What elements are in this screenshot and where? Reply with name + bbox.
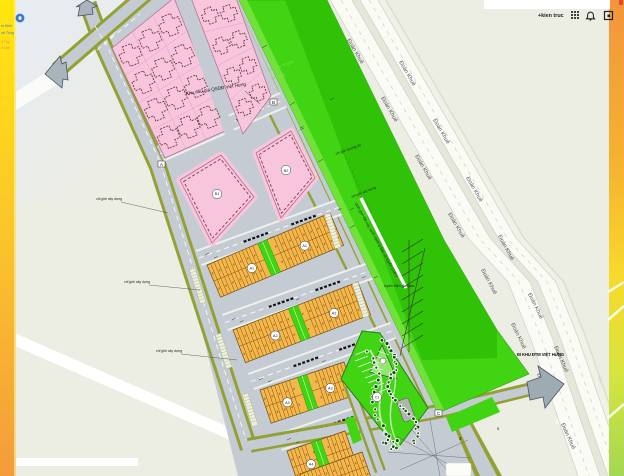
svg-text:B: B bbox=[272, 100, 275, 105]
svg-text:ư Mai: ư Mai bbox=[1, 46, 10, 50]
svg-text:A2: A2 bbox=[273, 334, 278, 338]
svg-text:chỉ giới xây dựng: chỉ giới xây dựng bbox=[96, 197, 122, 201]
svg-text:A3: A3 bbox=[285, 401, 290, 405]
svg-text:A4: A4 bbox=[309, 463, 314, 467]
svg-text:C1: C1 bbox=[375, 396, 380, 400]
svg-text:A1: A1 bbox=[249, 267, 254, 271]
svg-text:chỉ giới xây dựng: chỉ giới xây dựng bbox=[124, 280, 150, 284]
svg-text:nh Tùng: nh Tùng bbox=[1, 31, 14, 35]
svg-text:g Tạp: g Tạp bbox=[1, 40, 10, 44]
svg-text:+kien truc: +kien truc bbox=[538, 13, 564, 19]
svg-text:A1: A1 bbox=[302, 244, 307, 248]
svg-text:A: A bbox=[160, 162, 163, 167]
svg-text:ĐI KHU ĐTM VIỆT HƯNG: ĐI KHU ĐTM VIỆT HƯNG bbox=[517, 352, 564, 357]
svg-text:A2: A2 bbox=[332, 312, 337, 316]
svg-text:tuyến điện đi ngầm: tuyến điện đi ngầm bbox=[384, 284, 414, 288]
svg-text:A3: A3 bbox=[328, 387, 333, 391]
svg-text:B2: B2 bbox=[284, 169, 289, 173]
svg-text:chỉ giới xây dựng: chỉ giới xây dựng bbox=[156, 349, 182, 353]
svg-text:B1: B1 bbox=[215, 192, 220, 196]
svg-text:m Kinh: m Kinh bbox=[1, 24, 12, 28]
